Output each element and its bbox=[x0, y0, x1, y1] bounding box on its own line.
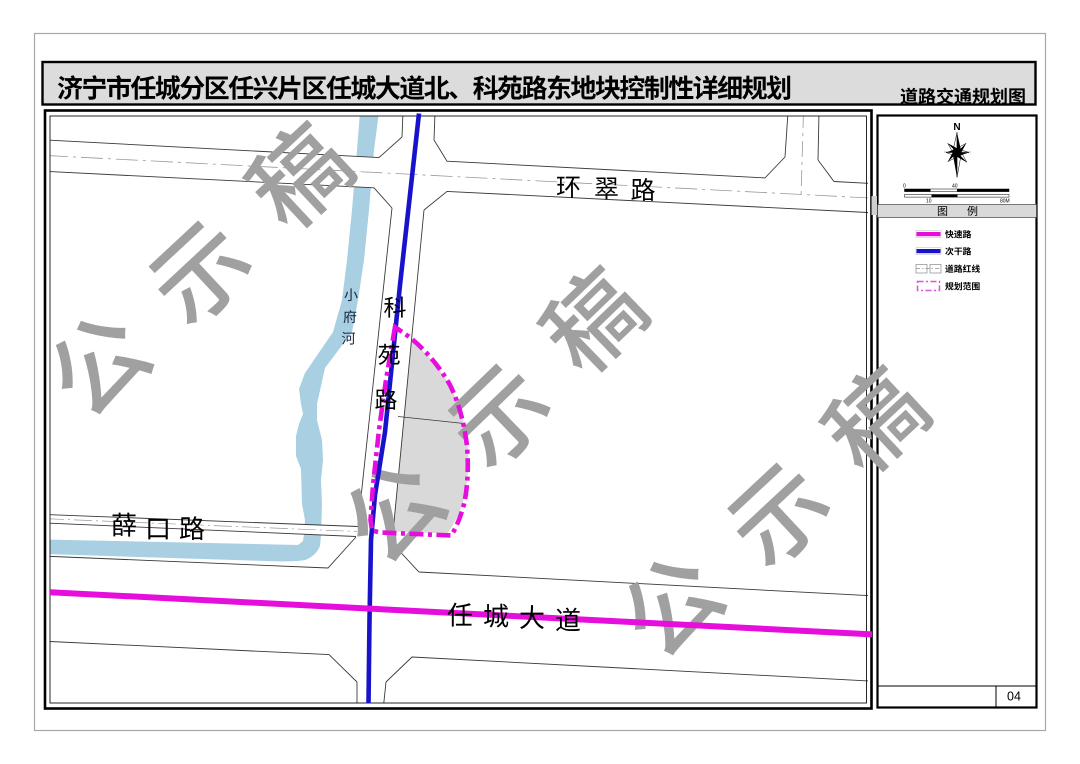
svg-text:04: 04 bbox=[1007, 690, 1021, 704]
svg-text:N: N bbox=[953, 122, 960, 133]
svg-text:10: 10 bbox=[926, 199, 932, 205]
svg-text:0: 0 bbox=[903, 184, 906, 190]
svg-text:40: 40 bbox=[952, 184, 958, 190]
svg-text:80M: 80M bbox=[1000, 199, 1010, 205]
